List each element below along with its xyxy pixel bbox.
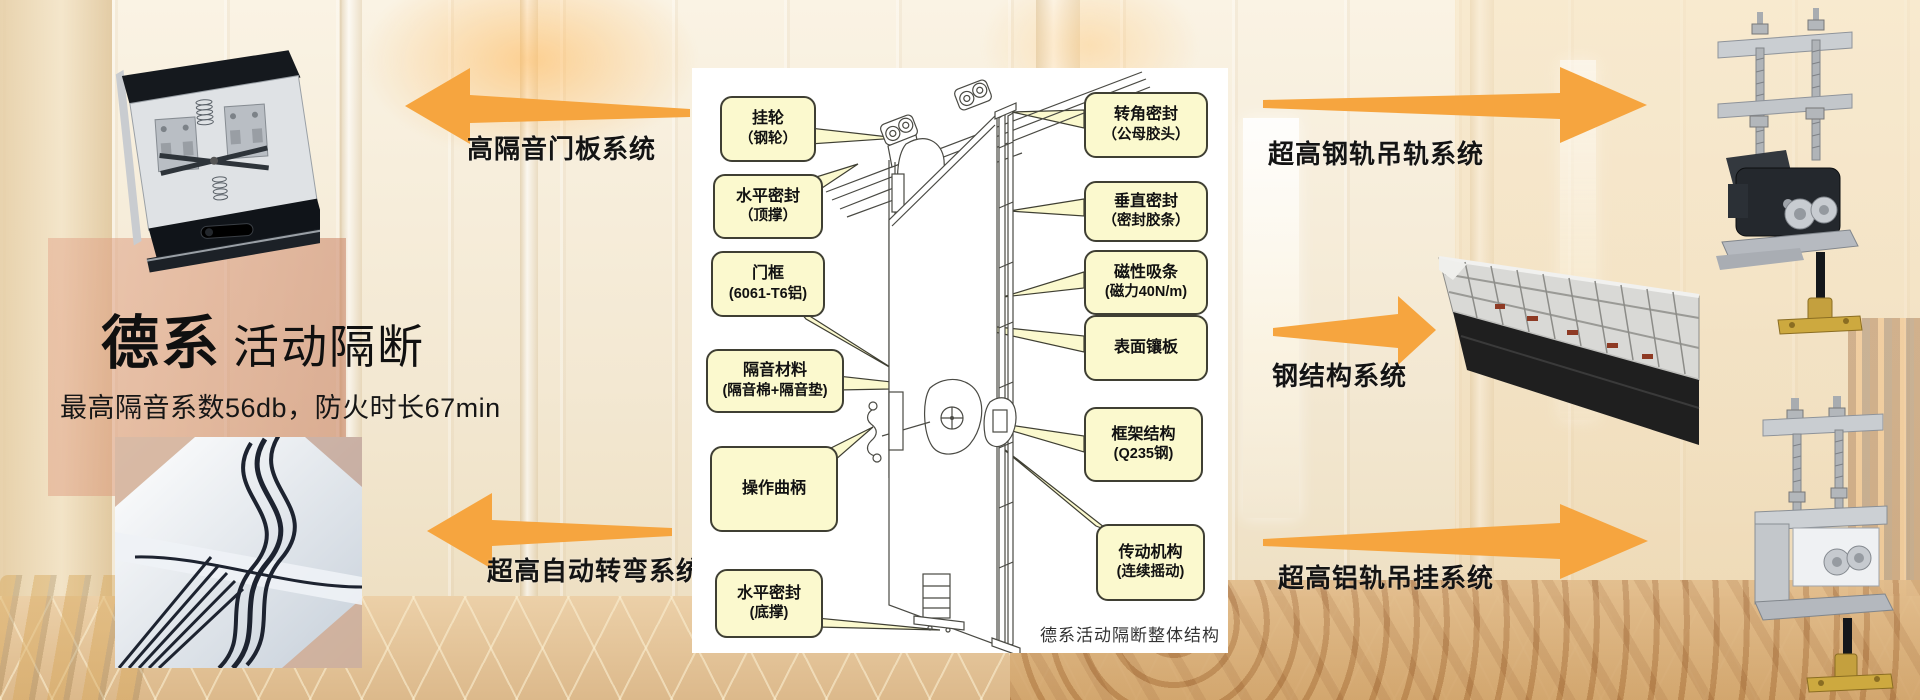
callout-transmission: 传动机构 (连续摇动) (1096, 524, 1205, 601)
callout-text: （顶撑） (739, 207, 797, 226)
callout-text: 磁性吸条 (1114, 263, 1178, 283)
callout-horizontal-seal-top: 水平密封 （顶撑） (713, 174, 823, 239)
callout-text: (底撑) (750, 604, 789, 623)
callout-text: （公母胶头） (1103, 126, 1190, 145)
callout-hanging-wheel: 挂轮 （钢轮） (720, 96, 816, 162)
callout-text: 转角密封 (1114, 105, 1178, 125)
callout-vertical-seal: 垂直密封 （密封胶条） (1084, 181, 1208, 242)
subtitle-specs: 最高隔音系数56db，防火时长67min (60, 386, 501, 425)
callout-sound-insulation: 隔音材料 (隔音棉+隔音垫) (706, 349, 844, 413)
callout-text: 隔音材料 (743, 361, 807, 381)
callout-corner-seal: 转角密封 （公母胶头） (1084, 92, 1208, 158)
callout-text: 水平密封 (737, 584, 801, 604)
title-product: 活动隔断 (233, 311, 425, 377)
label-door-panel-system: 高隔音门板系统 (467, 129, 656, 166)
callout-text: 框架结构 (1111, 425, 1175, 445)
label-steel-rail-system: 超高钢轨吊轨系统 (1268, 134, 1484, 171)
callout-door-frame: 门框 (6061-T6铝) (711, 251, 825, 317)
title-brand: 德系 (101, 296, 221, 380)
label-steel-structure-system: 钢结构系统 (1272, 356, 1407, 393)
photo-aluminium-rail-hanger (1735, 396, 1905, 694)
photo-curved-track (115, 437, 362, 668)
callout-text: (磁力40N/m) (1105, 283, 1187, 302)
callout-magnetic-strip: 磁性吸条 (磁力40N/m) (1084, 250, 1208, 315)
callout-text: （密封胶条） (1103, 212, 1190, 231)
photo-door-panel-mechanism (100, 40, 320, 285)
label-alu-rail-system: 超高铝轨吊挂系统 (1278, 558, 1494, 595)
callout-horizontal-seal-bottom: 水平密封 (底撑) (715, 569, 823, 638)
bg-door-glow (1243, 118, 1299, 518)
callout-text: (6061-T6铝) (729, 285, 807, 304)
callout-text: (隔音棉+隔音垫) (722, 382, 827, 401)
callout-text: 门框 (752, 264, 784, 284)
callout-text: 表面镶板 (1114, 338, 1178, 358)
page-title: 德系 活动隔断 (101, 296, 425, 380)
callout-text: 水平密封 (736, 187, 800, 207)
callout-frame-structure: 框架结构 (Q235钢) (1084, 407, 1203, 482)
page: 德系 活动隔断 最高隔音系数56db，防火时长67min 高隔音门板系统 超高自… (0, 0, 1920, 700)
callout-text: (连续摇动) (1117, 563, 1185, 582)
callout-surface-panel: 表面镶板 (1084, 315, 1208, 381)
callout-text: (Q235钢) (1114, 445, 1174, 464)
callout-operating-crank: 操作曲柄 (710, 446, 838, 532)
photo-steel-rail-hanger (1700, 8, 1870, 338)
callout-text: 挂轮 (752, 109, 784, 129)
photo-steel-truss (1437, 240, 1705, 452)
diagram-caption: 德系活动隔断整体结构 (1040, 621, 1220, 646)
callout-text: 传动机构 (1118, 543, 1182, 563)
callout-text: （钢轮） (739, 130, 797, 149)
label-auto-turn-system: 超高自动转弯系统 (487, 551, 703, 588)
callout-text: 操作曲柄 (742, 479, 806, 499)
callout-text: 垂直密封 (1114, 192, 1178, 212)
